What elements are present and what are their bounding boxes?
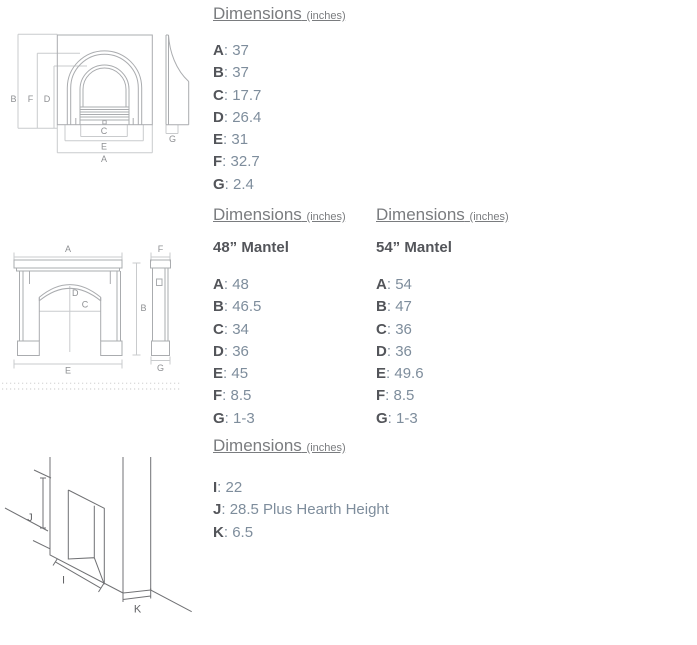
dim-letter: A — [376, 276, 387, 293]
dim-label-a: A — [65, 244, 71, 254]
dim-label-b: B — [141, 303, 147, 313]
dim-letter: C — [376, 321, 387, 338]
dim-value: : 31 — [223, 131, 248, 148]
dim-letter: E — [376, 365, 386, 382]
dim-value: : 36 — [387, 321, 412, 338]
dim-letter: B — [376, 298, 387, 315]
dim-label-c: C — [82, 300, 89, 310]
opening-dimension-lines — [5, 470, 151, 602]
insert-dimension-letters: B F D C E A G — [10, 94, 176, 164]
dim-row: F: 8.5 — [213, 385, 346, 407]
dim-letter: G — [213, 410, 225, 427]
dim-value: : 47 — [387, 298, 412, 315]
faint-dotted-lines — [2, 383, 182, 389]
dim-label-a: A — [101, 154, 107, 164]
dim-row: B: 37 — [213, 62, 346, 84]
dim-row: E: 31 — [213, 129, 346, 151]
dim-value: : 48 — [224, 276, 249, 293]
side-shelf — [151, 260, 171, 268]
heading-title: Dimensions — [213, 4, 302, 23]
dim-row: A: 48 — [213, 274, 346, 296]
inner-arch — [80, 65, 129, 107]
opening-dimensions-list: I: 22 J: 28.5 Plus Hearth Height K: 6.5 — [213, 477, 389, 544]
dim-row: E: 45 — [213, 363, 346, 385]
dim-value: : 28.5 Plus Hearth Height — [221, 501, 389, 518]
opening-dimensions-panel: Dimensions (inches) I: 22 J: 28.5 Plus H… — [213, 436, 389, 544]
mantel-drawing: A E B F G D C — [0, 240, 200, 395]
dim-value: : 49.6 — [386, 365, 424, 382]
dim-letter: K — [213, 524, 224, 541]
dim-row: C: 36 — [376, 319, 509, 341]
dim-label-d: D — [72, 288, 79, 298]
mantel-54-title: 54” Mantel — [376, 239, 509, 257]
dim-value: : 1-3 — [225, 410, 255, 427]
dim-row: I: 22 — [213, 477, 389, 499]
insert-dimension-lines — [18, 34, 178, 152]
dim-value: : 2.4 — [225, 176, 254, 193]
shelf-trim — [17, 268, 120, 271]
side-corbel — [157, 279, 163, 286]
dim-value: : 54 — [387, 276, 412, 293]
right-leg — [117, 271, 121, 341]
left-leg — [20, 271, 24, 341]
dim-row: A: 54 — [376, 274, 509, 296]
dim-letter: F — [213, 153, 222, 170]
grate-bar-lines — [80, 110, 129, 121]
dim-label-j: J — [27, 512, 33, 524]
insert-side-view — [166, 35, 189, 125]
dim-value: : 37 — [224, 64, 249, 81]
dim-label-f: F — [158, 244, 164, 254]
side-profile-curve — [169, 35, 189, 82]
dim-row: D: 36 — [376, 341, 509, 363]
insert-dimensions-list: A: 37 B: 37 C: 17.7 D: 26.4 E: 31 F: 32.… — [213, 40, 346, 196]
dim-line-j — [5, 470, 51, 549]
dim-value: : 45 — [223, 365, 248, 382]
heading-unit: (inches) — [307, 10, 346, 22]
dim-letter: B — [213, 298, 224, 315]
dim-row: D: 36 — [213, 341, 346, 363]
dim-label-k: K — [134, 604, 142, 616]
left-foot — [18, 341, 40, 356]
dim-value: : 8.5 — [222, 387, 251, 404]
right-foot — [101, 341, 122, 356]
dim-letter: G — [213, 176, 225, 193]
outer-arch — [67, 51, 141, 125]
heading-title: Dimensions — [376, 205, 465, 224]
heading-title: Dimensions — [213, 205, 302, 224]
dim-line-f — [37, 53, 80, 128]
fireplace-opening — [68, 490, 104, 584]
heading-unit: (inches) — [307, 211, 346, 223]
dim-value: : 37 — [224, 42, 249, 59]
heading-unit: (inches) — [470, 211, 509, 223]
dim-row: G: 2.4 — [213, 174, 346, 196]
section-heading: Dimensions (inches) — [213, 436, 389, 458]
dim-row: D: 26.4 — [213, 107, 346, 129]
dim-value: : 46.5 — [224, 298, 262, 315]
dim-label-c: C — [101, 126, 108, 136]
dim-value: : 6.5 — [224, 524, 253, 541]
mantel-54-dimensions-list: A: 54 B: 47 C: 36 D: 36 E: 49.6 F: 8.5 G… — [376, 274, 509, 430]
mantel-side-view — [151, 260, 171, 356]
dim-label-e: E — [65, 366, 71, 376]
side-foot — [152, 341, 170, 356]
dim-value: : 32.7 — [222, 153, 260, 170]
dim-letter: B — [213, 64, 224, 81]
dim-label-e: E — [101, 142, 107, 152]
dim-row: C: 34 — [213, 319, 346, 341]
mantel-54-panel: Dimensions (inches) 54” Mantel A: 54 B: … — [376, 205, 509, 430]
heading-title: Dimensions — [213, 436, 302, 455]
dim-letter: C — [213, 87, 224, 104]
dim-letter: D — [213, 109, 224, 126]
dim-letter: E — [213, 365, 223, 382]
mantel-48-dimensions-list: A: 48 B: 46.5 C: 34 D: 36 E: 45 F: 8.5 G… — [213, 274, 346, 430]
dim-letter: C — [213, 321, 224, 338]
dim-row: G: 1-3 — [213, 408, 346, 430]
dim-row: G: 1-3 — [376, 408, 509, 430]
insert-front-view — [57, 35, 152, 125]
dim-row: F: 8.5 — [376, 385, 509, 407]
dim-letter: A — [213, 276, 224, 293]
dim-value: : 36 — [224, 343, 249, 360]
dim-row: B: 46.5 — [213, 296, 346, 318]
grate-knob — [103, 121, 106, 124]
insert-drawing: B F D C E A G — [0, 0, 212, 170]
dim-line-g — [166, 125, 178, 134]
dim-value: : 36 — [387, 343, 412, 360]
dim-letter: D — [213, 343, 224, 360]
dim-value: : 8.5 — [385, 387, 414, 404]
dim-value: : 34 — [224, 321, 249, 338]
dim-row: E: 49.6 — [376, 363, 509, 385]
dim-label-g: G — [157, 363, 164, 373]
dim-letter: F — [213, 387, 222, 404]
dim-value: : 1-3 — [388, 410, 418, 427]
dim-value: : 22 — [217, 479, 242, 496]
dim-letter: A — [213, 42, 224, 59]
side-profile-lines — [166, 35, 189, 125]
dim-letter: G — [376, 410, 388, 427]
dim-letter: D — [376, 343, 387, 360]
insert-dimensions-panel: Dimensions (inches) A: 37 B: 37 C: 17.7 … — [213, 4, 346, 196]
wall-lines — [50, 457, 192, 612]
dim-row: J: 28.5 Plus Hearth Height — [213, 499, 389, 521]
section-heading: Dimensions (inches) — [213, 4, 346, 26]
wall-left-edge — [50, 457, 123, 593]
dim-row: B: 47 — [376, 296, 509, 318]
dim-label-g: G — [169, 134, 176, 144]
dim-row: A: 37 — [213, 40, 346, 62]
dim-value: : 26.4 — [224, 109, 262, 126]
dim-label-f: F — [28, 94, 34, 104]
dim-label-d: D — [44, 94, 51, 104]
dim-letter: E — [213, 131, 223, 148]
mantel-dimension-lines — [14, 253, 170, 369]
dim-letter: F — [376, 387, 385, 404]
heading-unit: (inches) — [307, 442, 346, 454]
leg-capitals — [30, 271, 111, 284]
section-heading: Dimensions (inches) — [213, 205, 346, 227]
mantel-48-title: 48” Mantel — [213, 239, 346, 257]
dim-value: : 17.7 — [224, 87, 262, 104]
wall-opening-drawing: J I K — [0, 445, 215, 645]
dim-label-i: I — [62, 575, 65, 587]
dim-row: C: 17.7 — [213, 85, 346, 107]
dim-label-b: B — [10, 94, 16, 104]
mantel-shelf — [14, 260, 122, 268]
dim-row: K: 6.5 — [213, 522, 389, 544]
inner-arch-inner-line — [83, 68, 126, 107]
mantel-front-view — [14, 260, 122, 356]
mantel-48-panel: Dimensions (inches) 48” Mantel A: 48 B: … — [213, 205, 346, 430]
section-heading: Dimensions (inches) — [376, 205, 509, 227]
dim-row: F: 32.7 — [213, 151, 346, 173]
dim-line-b — [133, 263, 141, 355]
